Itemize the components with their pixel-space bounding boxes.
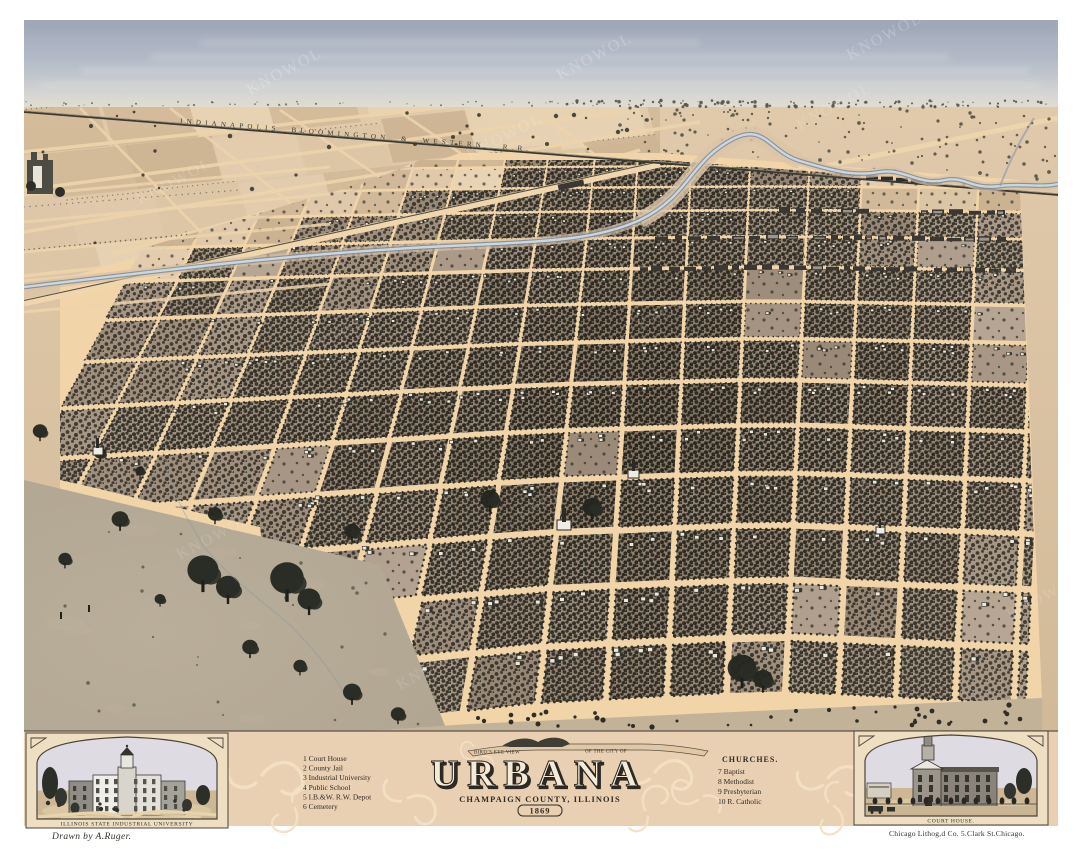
svg-text:10 R. Catholic: 10 R. Catholic — [718, 797, 762, 806]
svg-text:1869: 1869 — [530, 806, 551, 816]
svg-text:Drawn by A.Ruger.: Drawn by A.Ruger. — [51, 832, 131, 842]
svg-text:1 Court House: 1 Court House — [303, 754, 347, 763]
svg-text:3 Industrial University: 3 Industrial University — [303, 773, 371, 782]
svg-text:5 I.B.&W. R.W. Depot: 5 I.B.&W. R.W. Depot — [303, 792, 372, 801]
svg-text:URBANA: URBANA — [431, 753, 647, 795]
svg-text:2 County Jail: 2 County Jail — [303, 764, 343, 773]
svg-text:CHAMPAIGN COUNTY, ILLINOIS: CHAMPAIGN COUNTY, ILLINOIS — [459, 795, 620, 804]
svg-text:CHURCHES.: CHURCHES. — [722, 755, 778, 764]
svg-text:6 Cemetery: 6 Cemetery — [303, 802, 338, 811]
svg-text:Chicago Lithog,d Co. 5.Clark: Chicago Lithog,d Co. 5.Clark St.Chicago. — [889, 829, 1025, 838]
svg-text:4 Public School: 4 Public School — [303, 783, 351, 792]
svg-text:MAIN ST.: MAIN ST. — [795, 254, 829, 260]
svg-text:7 Baptist: 7 Baptist — [718, 767, 746, 776]
svg-text:WATER ST.: WATER ST. — [788, 216, 824, 222]
svg-text:COURT HOUSE.: COURT HOUSE. — [927, 819, 974, 825]
svg-text:9 Presbyterian: 9 Presbyterian — [718, 787, 761, 796]
svg-text:8 Methodist: 8 Methodist — [718, 777, 755, 786]
svg-text:ILLINOIS STATE INDUSTRIAL U: ILLINOIS STATE INDUSTRIAL UNIVERSITY — [61, 822, 194, 828]
